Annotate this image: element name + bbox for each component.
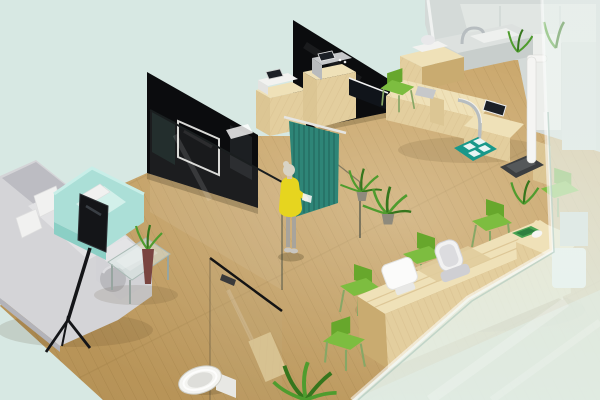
device-button bbox=[344, 61, 347, 64]
person-shadow bbox=[278, 253, 304, 262]
stadiometer-pole bbox=[527, 57, 536, 163]
cabinet-grain bbox=[256, 90, 270, 136]
person-shoe bbox=[290, 249, 298, 254]
table-shadow bbox=[94, 285, 178, 305]
exam-instrument-head bbox=[421, 35, 435, 45]
exam-leg bbox=[430, 96, 444, 126]
person-leg bbox=[286, 212, 290, 247]
person-dress bbox=[279, 177, 302, 217]
cabinet-grain bbox=[303, 72, 317, 128]
isometric-interior-render: Isometric 3D rendering of a clinic offic… bbox=[0, 0, 600, 400]
person-leg bbox=[292, 212, 296, 248]
plant-pot bbox=[382, 214, 395, 225]
device-button bbox=[339, 59, 342, 62]
plant-pot bbox=[357, 192, 368, 201]
screenshot-stage: Isometric 3D rendering of a clinic offic… bbox=[0, 0, 600, 400]
person-hair-bun bbox=[283, 161, 289, 167]
